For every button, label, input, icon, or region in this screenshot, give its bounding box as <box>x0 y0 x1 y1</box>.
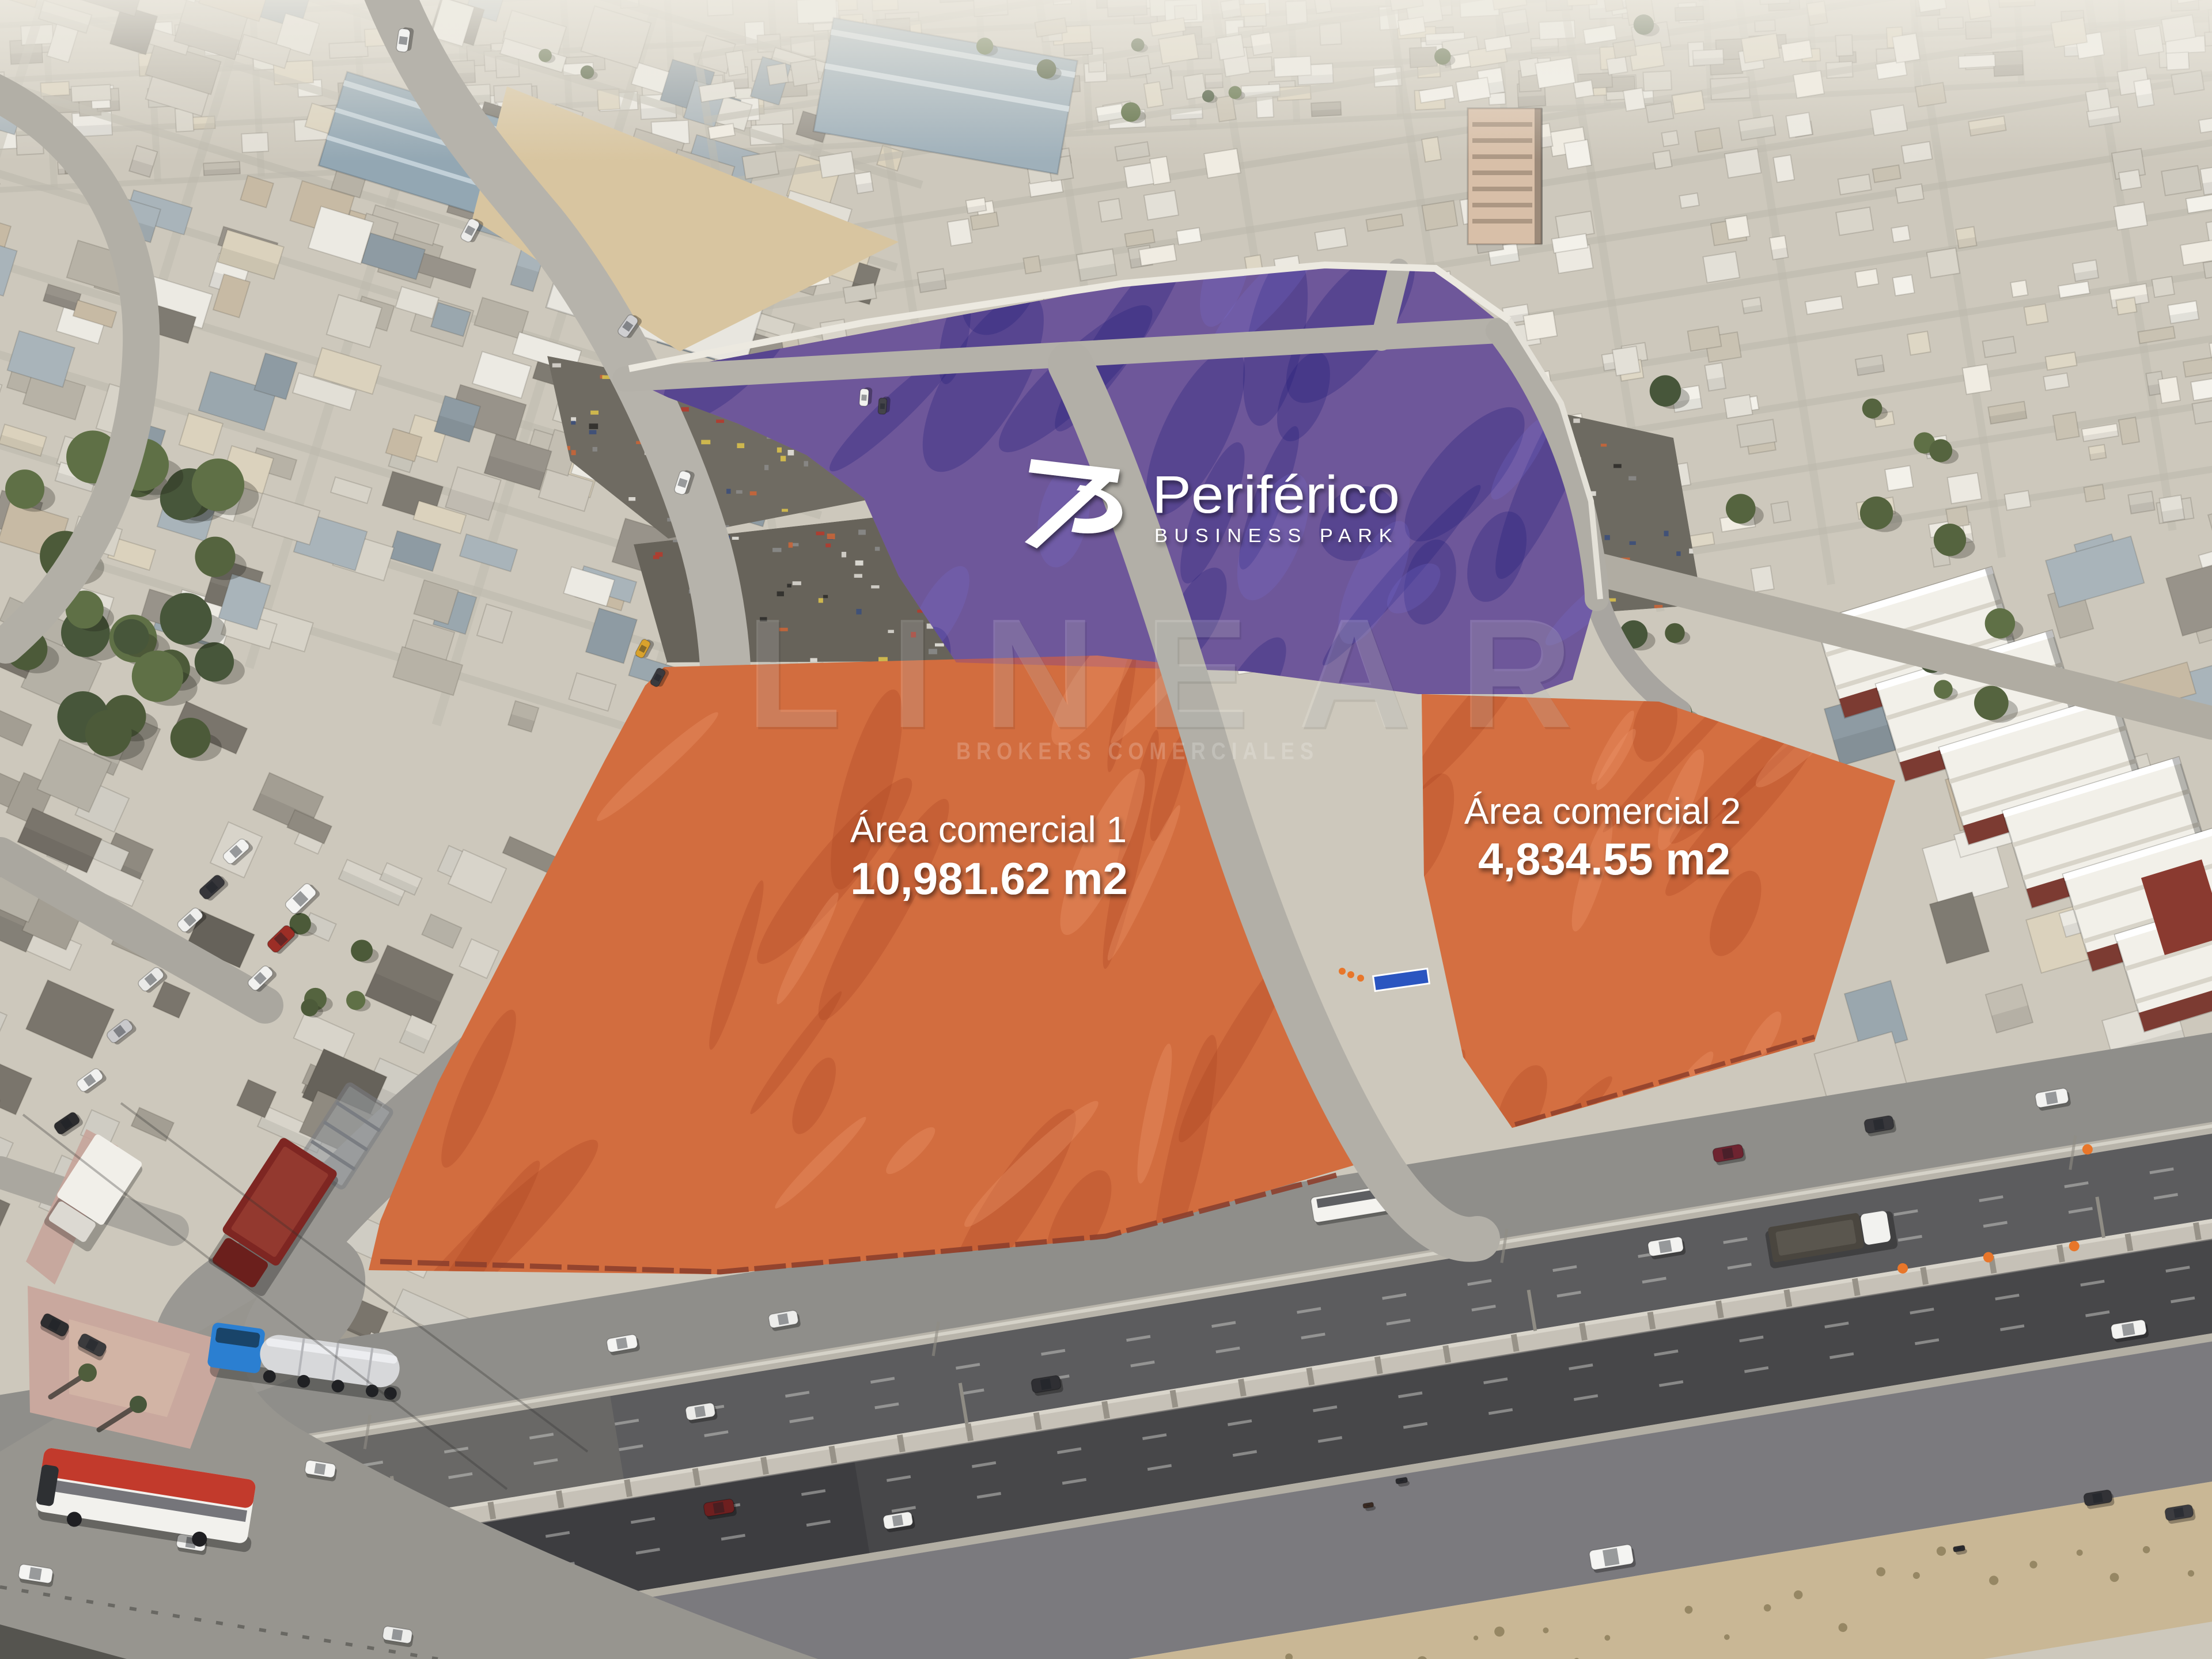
decor-rect <box>2024 304 2048 325</box>
palm-tree <box>130 1396 147 1413</box>
decor-rect <box>1885 466 1913 491</box>
aerial-photo-periferico-business-park: LINEAR LINEAR BROKERS COMERCIALES Perifé… <box>0 0 2212 1659</box>
decor-rect <box>314 1463 325 1475</box>
decor-rect <box>1679 193 1699 208</box>
decor-rect <box>1891 226 1910 243</box>
decor-rect <box>1658 1240 1672 1253</box>
decor-rect <box>1573 419 1580 423</box>
decor-rect <box>571 417 576 421</box>
decor-rect <box>571 450 576 455</box>
decor-rect <box>1893 275 1915 296</box>
decor-rect <box>2122 1323 2135 1336</box>
decor-rect <box>1836 207 1873 236</box>
decor-rect <box>1722 1147 1734 1160</box>
decor-rect <box>29 1567 42 1580</box>
tree <box>1665 623 1685 643</box>
decor-rect <box>737 443 744 448</box>
decor-rect <box>1927 248 1960 278</box>
tree <box>1929 439 1952 462</box>
decor-rect <box>1628 476 1636 480</box>
tree <box>346 991 365 1010</box>
decor-rect <box>1099 199 1122 222</box>
decor-rect <box>948 219 972 246</box>
decor-rect <box>1948 473 1982 503</box>
decor-rect <box>804 461 808 466</box>
decor-rect <box>2191 378 2212 400</box>
decor-rect <box>1771 501 1790 523</box>
tree <box>160 593 212 645</box>
decor-rect <box>1703 252 1740 283</box>
logo-brand-text: Periférico <box>1152 465 1400 524</box>
decor-rect <box>2084 484 2105 502</box>
tree <box>5 469 44 509</box>
decor-rect <box>1603 1548 1619 1566</box>
decor-rect <box>655 552 662 556</box>
decor-rect <box>726 489 730 494</box>
decor-rect <box>892 1514 904 1527</box>
decor-rect <box>1144 191 1179 220</box>
decor-rect <box>1604 535 1609 540</box>
decor-rect <box>2158 377 2180 403</box>
decor-rect <box>842 552 846 558</box>
decor-rect <box>875 547 880 551</box>
decor-rect <box>713 1502 725 1514</box>
decor-rect <box>1873 1119 1885 1131</box>
decor-rect <box>1855 269 1878 287</box>
decor-rect <box>628 497 635 501</box>
decor-rect <box>855 560 863 566</box>
decor-rect <box>2010 281 2028 297</box>
decor-rect <box>2173 1508 2184 1518</box>
decor-rect <box>1688 326 1722 351</box>
decor-rect <box>593 447 597 452</box>
decor-rect <box>772 548 781 552</box>
tree <box>1934 680 1953 699</box>
tree <box>132 650 183 702</box>
decor-rect <box>764 465 768 470</box>
palm-tree <box>78 1363 97 1382</box>
distance-haze <box>0 0 2212 161</box>
decor-rect <box>827 533 835 539</box>
tree <box>85 710 132 756</box>
decor-rect <box>1523 311 1557 340</box>
decor-rect <box>1676 551 1680 556</box>
decor-rect <box>1907 331 1930 355</box>
decor-rect <box>2005 491 2031 510</box>
decor-rect <box>1724 395 1752 418</box>
decor-rect <box>732 537 739 540</box>
cab-blue <box>207 1322 266 1374</box>
decor-rect <box>2045 1092 2058 1105</box>
decor-rect <box>716 419 724 423</box>
decor-rect <box>778 1313 789 1325</box>
decor-rect <box>2119 417 2139 444</box>
area2-label-title: Área comercial 2 <box>1464 790 1741 832</box>
decor-rect <box>1422 200 1458 230</box>
decor-rect <box>861 395 867 401</box>
decor-rect <box>2116 297 2137 315</box>
decor-rect <box>781 456 786 461</box>
logo-subtitle-text: BUSINESS PARK <box>1154 525 1399 546</box>
decor-rect <box>392 1629 403 1641</box>
watermark-tagline: BROKERS COMERCIALES <box>956 737 1319 764</box>
decor-rect <box>571 421 575 425</box>
decor-rect <box>750 491 757 495</box>
truck-cab <box>1860 1210 1891 1245</box>
decor-rect <box>793 581 801 585</box>
tree <box>171 718 211 758</box>
decor-rect <box>854 574 862 578</box>
decor-rect <box>2114 202 2147 230</box>
decor-rect <box>694 1406 706 1418</box>
decor-rect <box>1023 256 1041 274</box>
decor-rect <box>1737 419 1777 447</box>
tree <box>1726 494 1756 524</box>
decor-rect <box>1315 228 1347 251</box>
decor-rect <box>590 411 599 415</box>
decor-rect <box>1725 215 1749 239</box>
decor-rect <box>2053 412 2080 440</box>
car <box>859 387 872 407</box>
watermark-brand: LINEAR <box>746 587 1622 760</box>
decor-rect <box>825 544 831 548</box>
tree <box>195 537 235 577</box>
tree <box>1650 375 1681 406</box>
decor-rect <box>1630 541 1636 545</box>
decor-rect <box>816 532 825 535</box>
decor-rect <box>858 529 866 535</box>
decor-rect <box>1664 531 1669 536</box>
decor-rect <box>589 423 599 429</box>
decor-rect <box>2161 166 2201 196</box>
decor-rect <box>1751 566 1774 592</box>
decor-rect <box>1040 1378 1052 1391</box>
area1-label-title: Área comercial 1 <box>850 809 1127 850</box>
decor-rect <box>880 403 885 409</box>
tree <box>192 459 244 511</box>
tree <box>113 619 149 655</box>
decor-rect <box>1963 364 1991 394</box>
decor-rect <box>1177 228 1202 244</box>
area2-label-size: 4,834.55 m2 <box>1478 834 1730 884</box>
decor-rect <box>777 448 782 453</box>
tree <box>351 940 373 961</box>
tree <box>1934 524 1966 556</box>
decor-rect <box>589 430 597 434</box>
decor-rect <box>2092 1493 2103 1503</box>
decor-rect <box>681 407 688 412</box>
decor-rect <box>1601 444 1607 446</box>
tree <box>1860 497 1893 529</box>
linear-brokers-watermark: LINEAR LINEAR BROKERS COMERCIALES <box>746 587 1623 764</box>
decor-rect <box>787 450 794 456</box>
decor-rect <box>701 440 710 445</box>
aerial-scene: LINEAR LINEAR BROKERS COMERCIALES Perifé… <box>0 0 2212 1659</box>
decor-rect <box>2119 170 2141 191</box>
tree <box>1985 608 2015 638</box>
decor-rect <box>782 509 788 512</box>
decor-rect <box>552 363 561 368</box>
area1-label-size: 10,981.62 m2 <box>850 853 1127 904</box>
tree <box>301 999 318 1016</box>
decor-rect <box>1612 346 1640 376</box>
decor-rect <box>789 542 793 547</box>
decor-rect <box>736 490 743 494</box>
tree <box>1974 686 2009 721</box>
decor-rect <box>2152 276 2175 297</box>
decor-rect <box>1613 464 1622 468</box>
decor-rect <box>399 36 408 45</box>
tree <box>1862 399 1883 419</box>
decor-rect <box>2044 373 2069 391</box>
decor-rect <box>616 1338 628 1350</box>
